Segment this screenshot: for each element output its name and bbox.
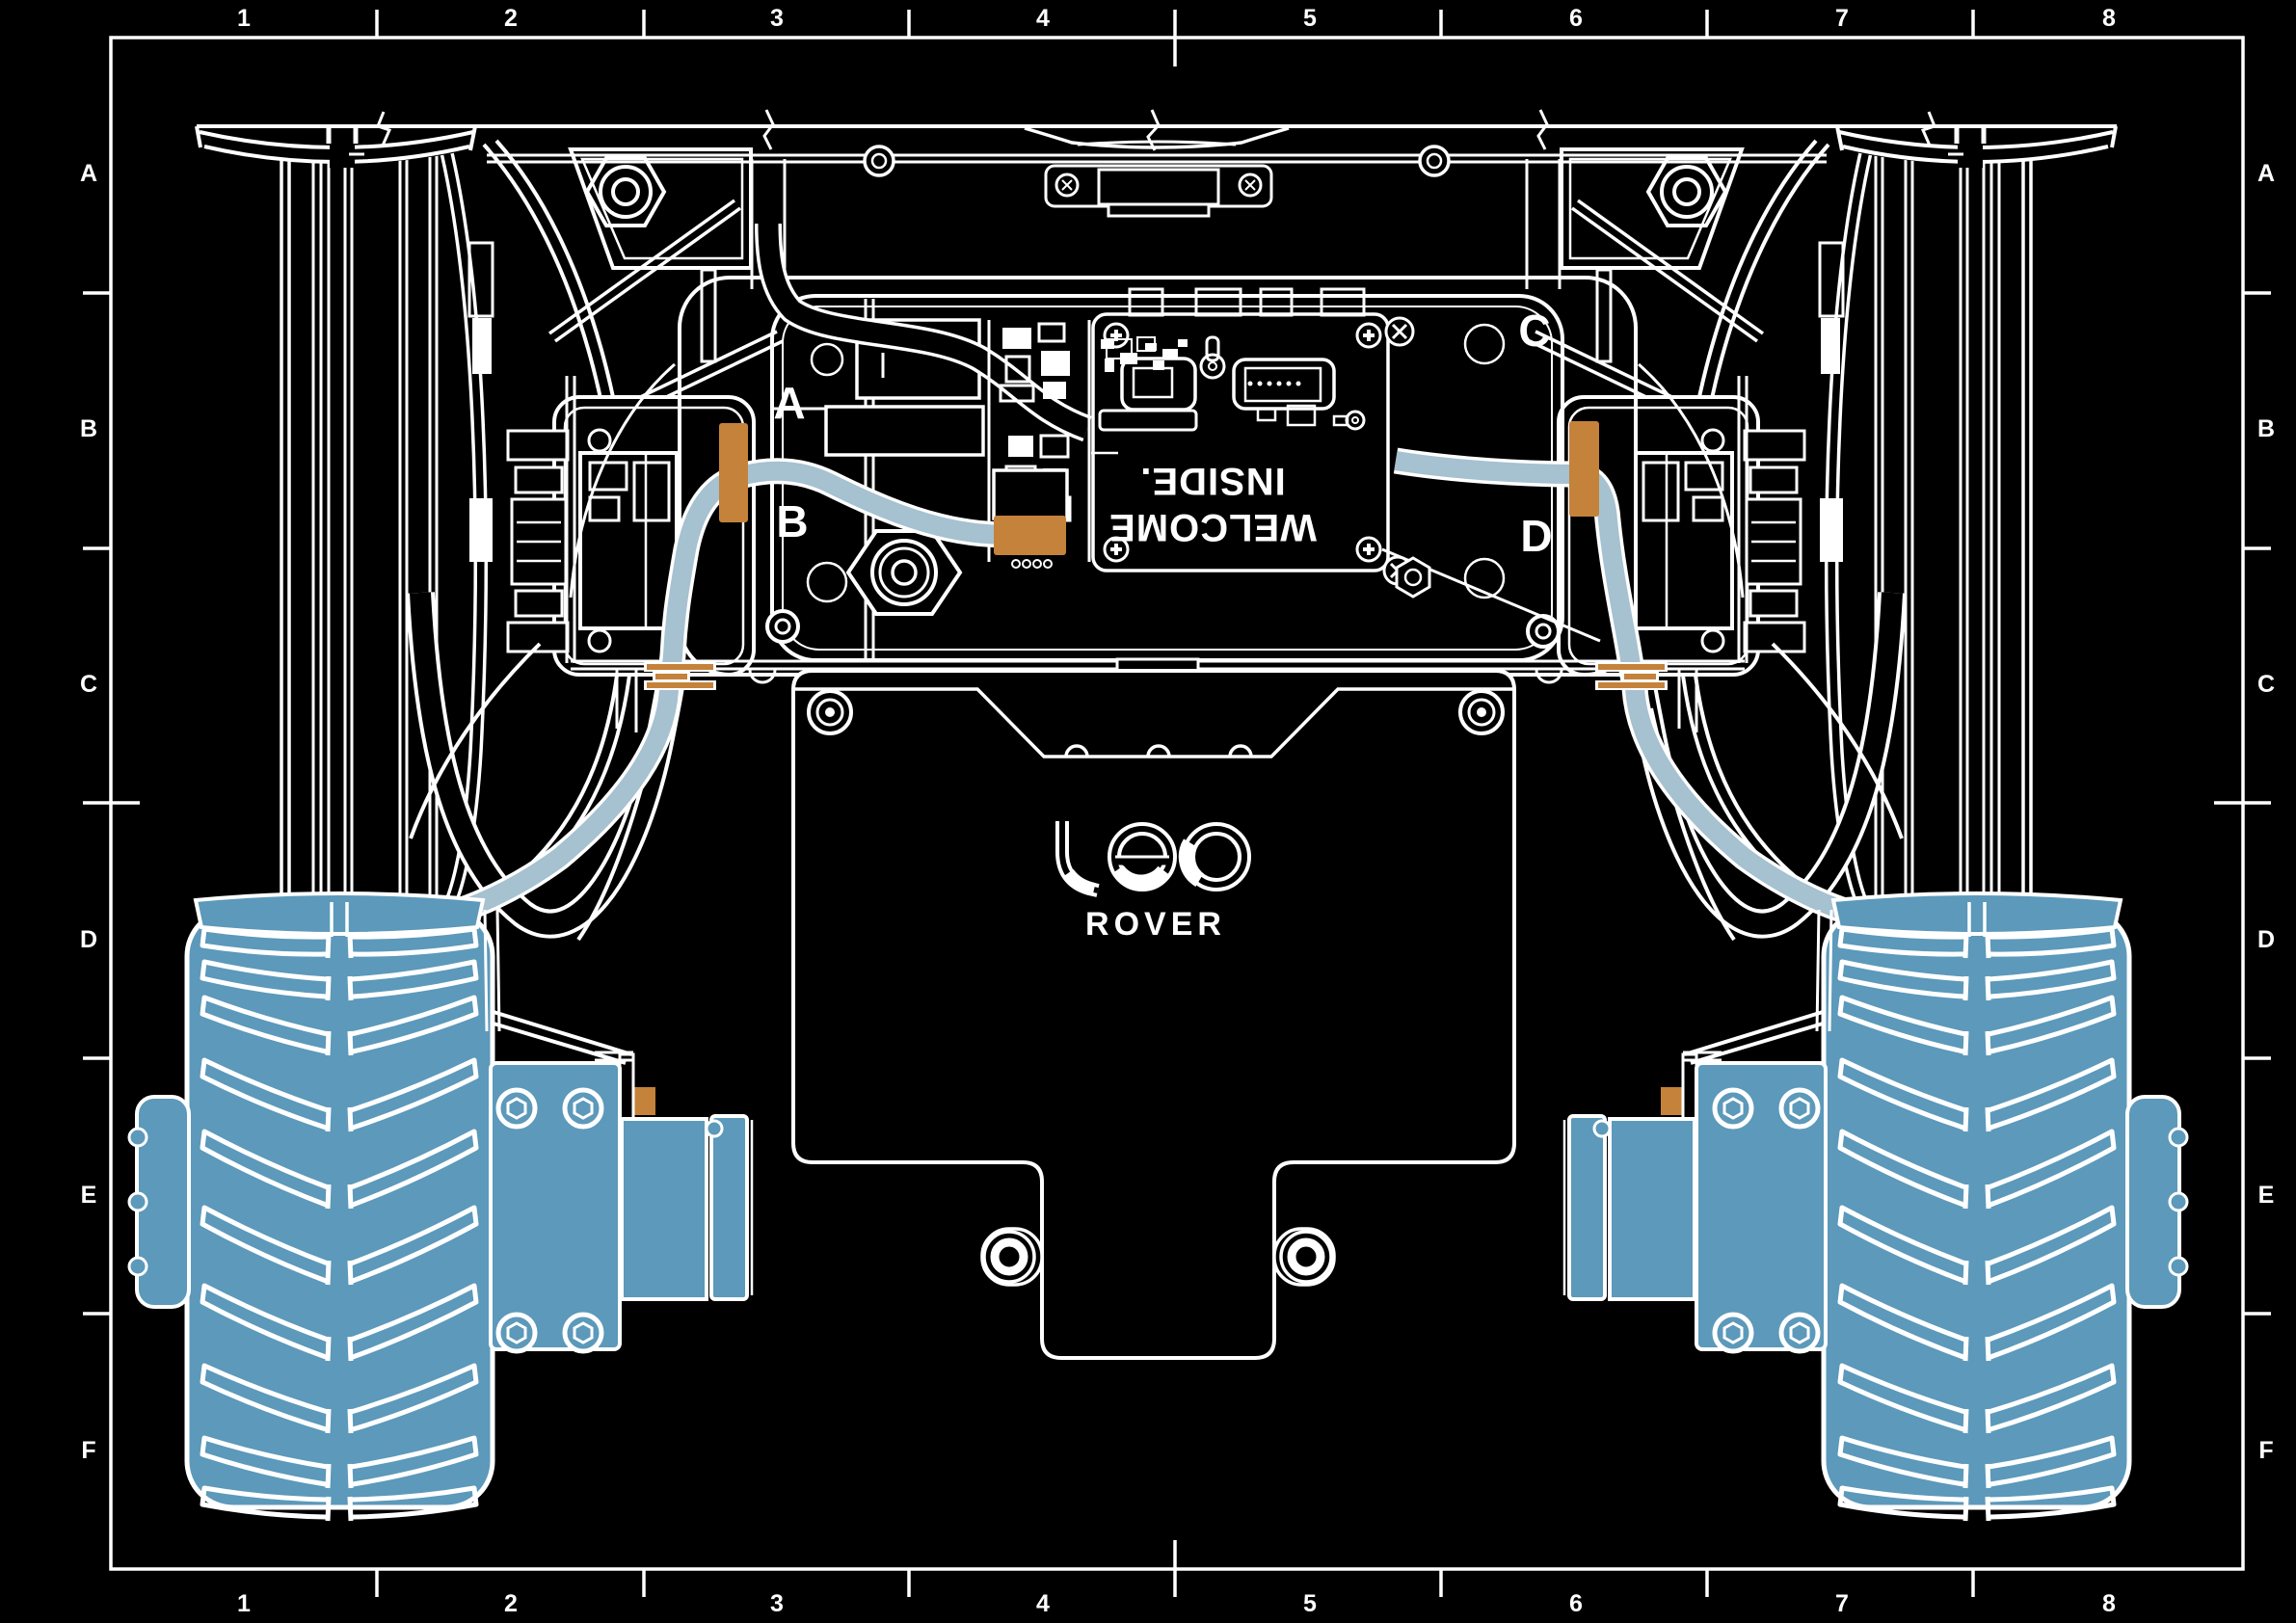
svg-text:C: C (80, 671, 97, 698)
svg-text:E: E (2258, 1182, 2275, 1209)
svg-text:3: 3 (770, 5, 784, 32)
svg-text:2: 2 (504, 1590, 518, 1617)
svg-text:5: 5 (1303, 1590, 1317, 1617)
svg-text:ROVER: ROVER (1085, 906, 1226, 943)
svg-text:4: 4 (1036, 1590, 1050, 1617)
svg-text:B: B (80, 415, 97, 442)
svg-text:6: 6 (1569, 5, 1583, 32)
svg-text:INSIDE.: INSIDE. (1139, 460, 1285, 502)
svg-text:A: A (2257, 160, 2275, 187)
svg-text:7: 7 (1835, 5, 1849, 32)
svg-text:7: 7 (1835, 1590, 1849, 1617)
svg-text:8: 8 (2102, 5, 2116, 32)
svg-text:2: 2 (504, 5, 518, 32)
svg-text:1: 1 (237, 1590, 251, 1617)
svg-text:B: B (2257, 415, 2275, 442)
svg-text:1: 1 (237, 5, 251, 32)
svg-text:8: 8 (2102, 1590, 2116, 1617)
svg-text:6: 6 (1569, 1590, 1583, 1617)
svg-text:B: B (776, 496, 808, 546)
svg-text:C: C (2257, 671, 2275, 698)
svg-text:5: 5 (1303, 5, 1317, 32)
svg-text:F: F (81, 1437, 95, 1464)
svg-text:3: 3 (770, 1590, 784, 1617)
svg-text:E: E (81, 1182, 97, 1209)
svg-text:A: A (773, 378, 805, 428)
svg-text:D: D (1520, 511, 1552, 561)
svg-text:WELCOME: WELCOME (1108, 506, 1317, 548)
svg-text:D: D (2257, 926, 2275, 953)
svg-text:4: 4 (1036, 5, 1050, 32)
svg-text:F: F (2258, 1437, 2273, 1464)
svg-text:D: D (80, 926, 97, 953)
svg-text:C: C (1518, 306, 1550, 356)
svg-text:A: A (80, 160, 97, 187)
